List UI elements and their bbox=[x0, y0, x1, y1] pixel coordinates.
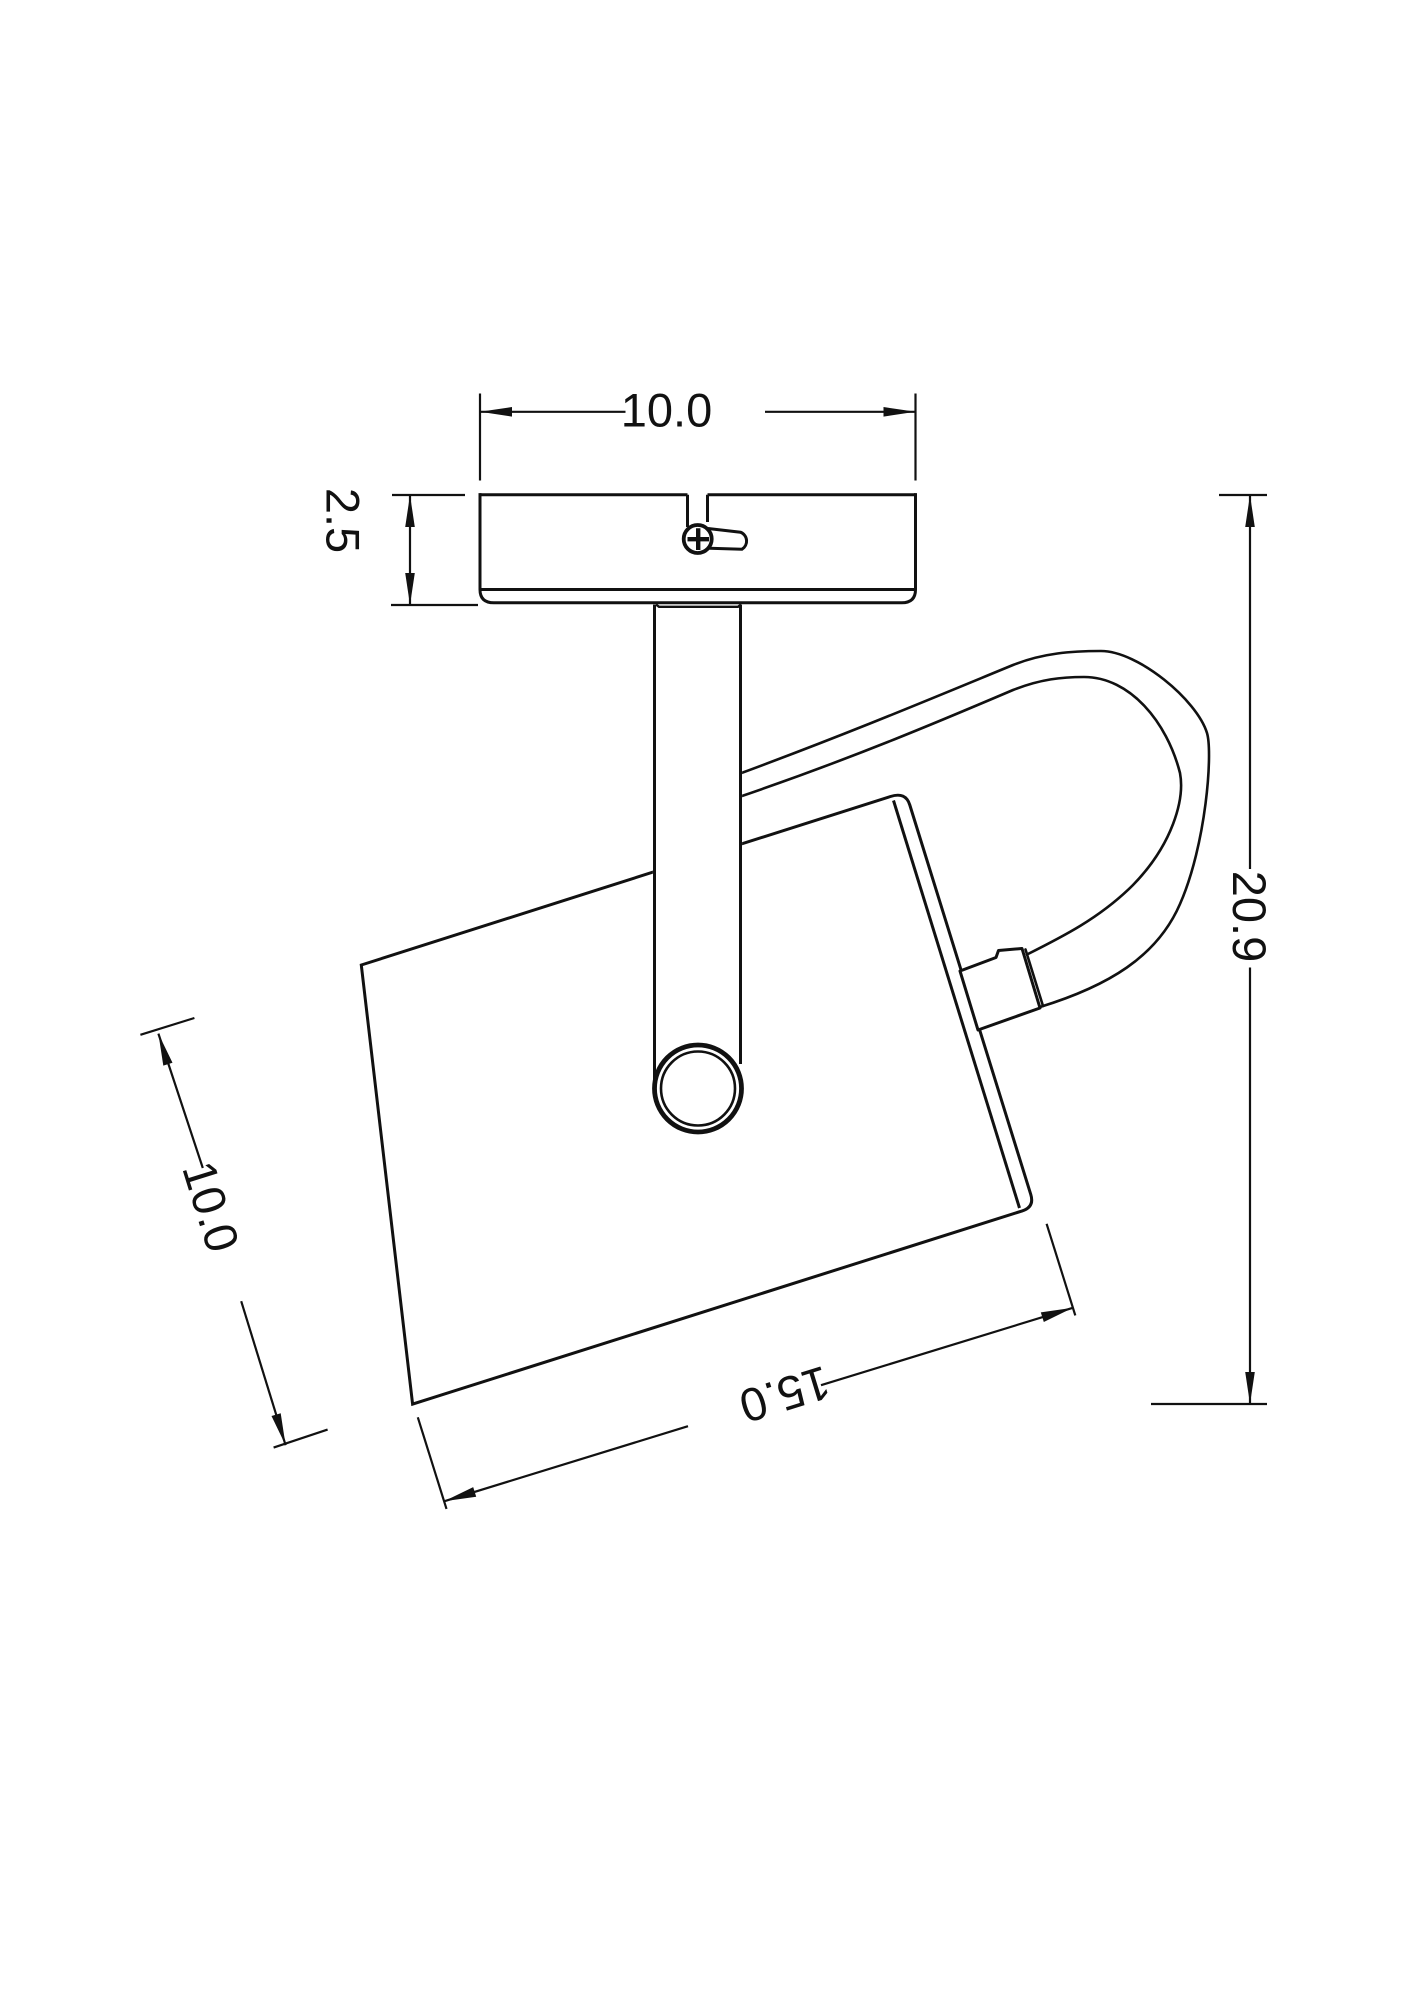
svg-text:20.9: 20.9 bbox=[1223, 871, 1276, 962]
svg-text:10.0: 10.0 bbox=[621, 384, 712, 437]
svg-text:2.5: 2.5 bbox=[317, 488, 370, 553]
